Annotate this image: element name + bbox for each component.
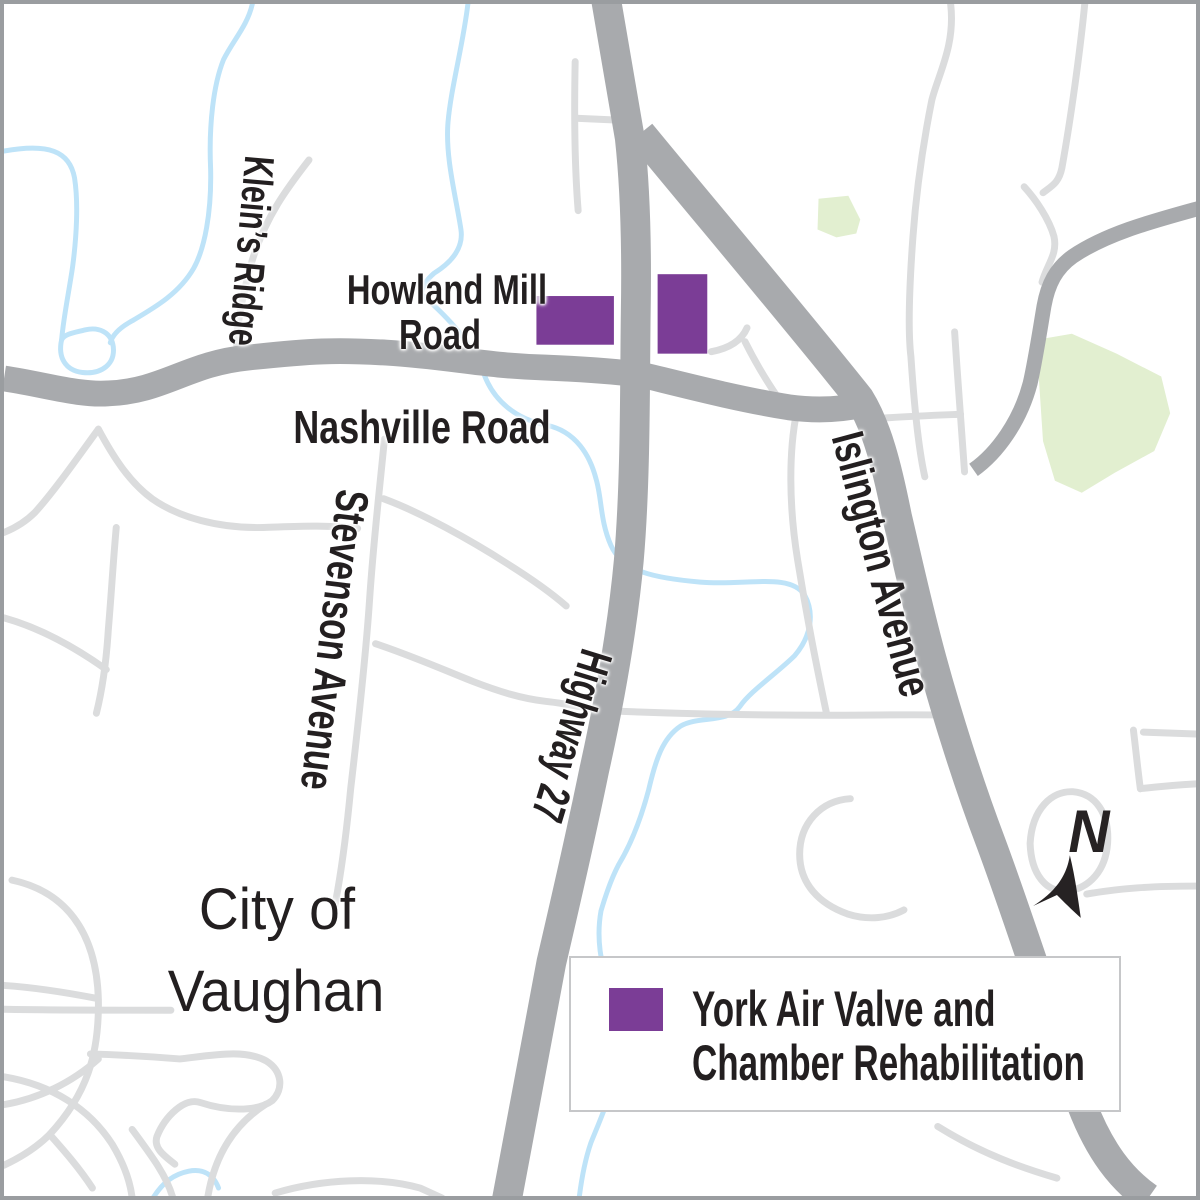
creek-pond-loop xyxy=(61,329,114,373)
park-polygon-large xyxy=(1037,334,1170,493)
minor-road xyxy=(4,985,96,998)
minor-road xyxy=(90,1054,279,1164)
creek-west xyxy=(4,148,77,340)
region-label-line2: Vaughan xyxy=(168,963,385,1021)
legend-swatch-york-air-valve xyxy=(609,988,663,1031)
road-label-howland-mill-line1: Howland Mill xyxy=(347,269,547,311)
minor-road xyxy=(4,429,98,532)
minor-road xyxy=(909,4,951,477)
map-canvas: Klein’s Ridge Howland Mill Road Nashvill… xyxy=(0,0,1200,1200)
minor-road xyxy=(1143,732,1196,734)
minor-road xyxy=(1087,886,1196,894)
region-label-line1: City of xyxy=(199,881,355,939)
minor-road xyxy=(800,799,904,918)
minor-road xyxy=(1024,187,1055,282)
creek-meander-east-branch xyxy=(421,4,468,294)
minor-road xyxy=(4,1077,132,1196)
minor-road xyxy=(4,618,106,670)
minor-road xyxy=(1133,730,1140,789)
minor-road xyxy=(4,880,98,1165)
north-arrow-letter: N xyxy=(1068,802,1109,862)
minor-road xyxy=(882,414,960,418)
minor-road xyxy=(132,1129,173,1196)
road-label-nashville-road: Nashville Road xyxy=(293,404,550,450)
project-site-rect-east xyxy=(658,274,708,353)
road-label-howland-mill-line2: Road xyxy=(399,314,481,356)
minor-road xyxy=(1140,784,1196,789)
minor-road xyxy=(938,1126,1057,1178)
minor-road xyxy=(383,499,566,606)
legend-box: York Air Valve and Chamber Rehabilitatio… xyxy=(569,956,1121,1112)
legend-label-line2: Chamber Rehabilitation xyxy=(692,1038,1085,1088)
minor-road xyxy=(50,1134,93,1188)
minor-road xyxy=(955,332,965,472)
minor-road xyxy=(4,1009,171,1010)
park-polygon-small xyxy=(818,196,861,238)
minor-road xyxy=(791,412,827,713)
minor-road xyxy=(575,62,579,211)
minor-road xyxy=(275,1181,442,1196)
project-site-rect-west xyxy=(536,296,613,345)
legend-label-line1: York Air Valve and xyxy=(692,984,995,1034)
minor-road xyxy=(711,328,747,352)
minor-road xyxy=(96,527,116,713)
minor-road xyxy=(1043,4,1085,193)
minor-road xyxy=(597,710,954,715)
